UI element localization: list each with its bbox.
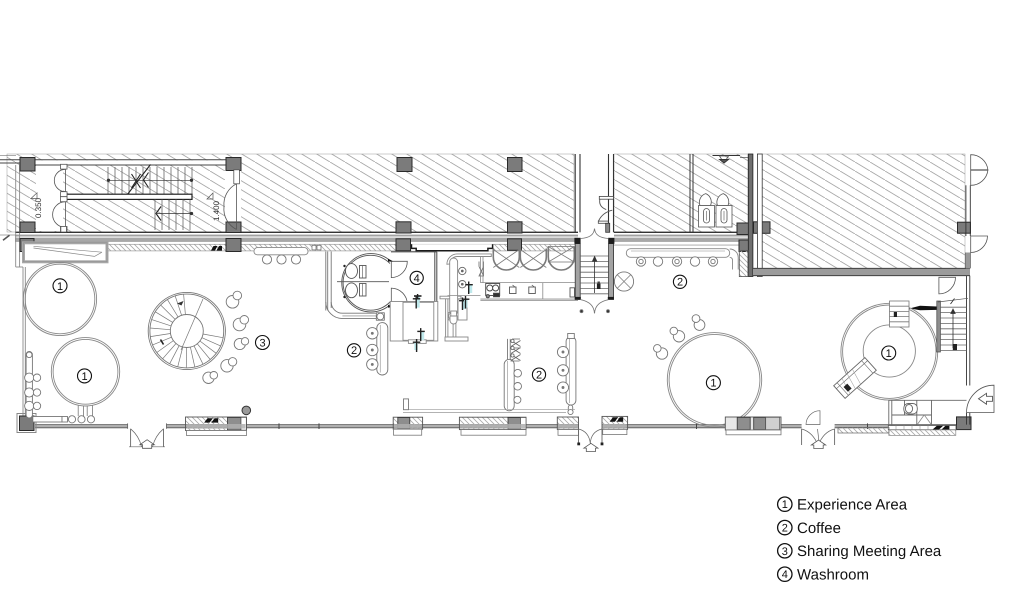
svg-text:Washroom: Washroom [797,567,869,584]
svg-text:2: 2 [677,277,683,289]
svg-text:1: 1 [57,281,63,293]
svg-text:0.350: 0.350 [34,197,43,218]
svg-text:Sharing Meeting Area: Sharing Meeting Area [797,543,942,560]
svg-text:1: 1 [710,378,716,390]
svg-text:1: 1 [81,371,87,383]
svg-text:3: 3 [259,338,265,350]
svg-text:1: 1 [886,348,892,360]
svg-text:Experience Area: Experience Area [797,497,908,514]
svg-text:1: 1 [782,499,788,511]
svg-text:Coffee: Coffee [797,520,841,537]
svg-text:3: 3 [782,546,788,558]
svg-text:4: 4 [782,569,788,581]
svg-text:1.400: 1.400 [212,200,221,221]
svg-text:2: 2 [536,370,542,382]
svg-text:2: 2 [351,345,357,357]
svg-text:4: 4 [414,273,420,285]
svg-text:2: 2 [782,523,788,535]
